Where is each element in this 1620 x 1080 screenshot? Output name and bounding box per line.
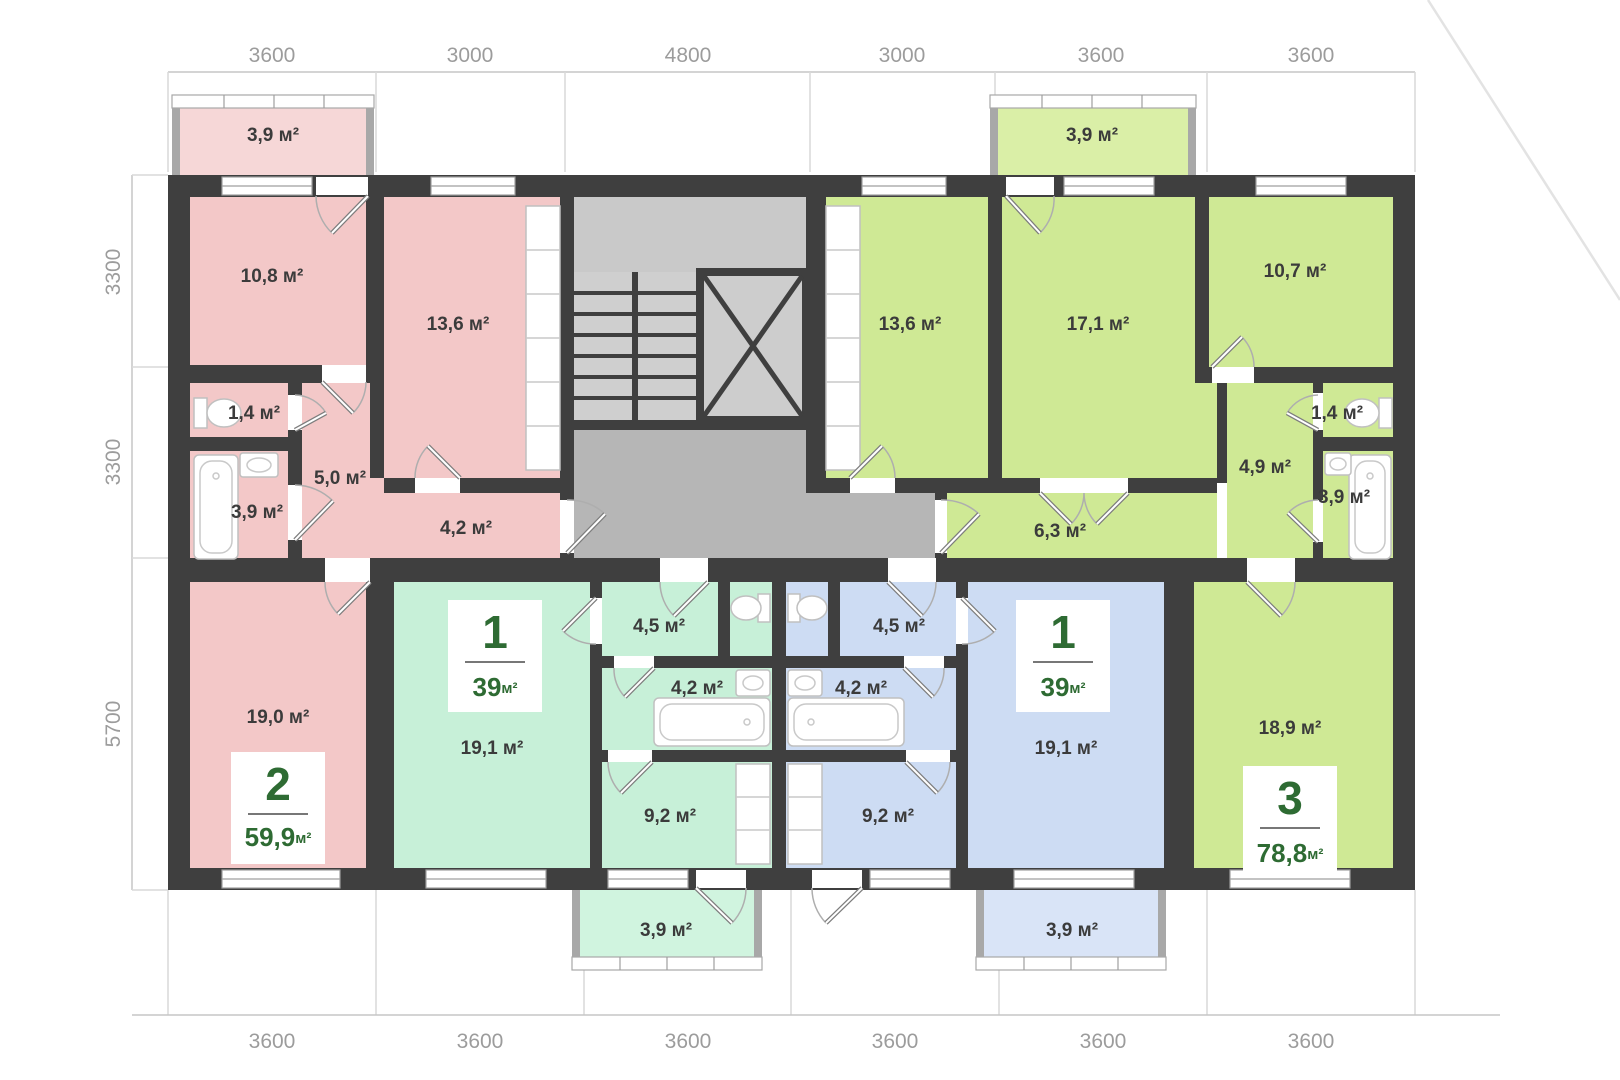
toilet-icon bbox=[731, 594, 770, 622]
room-label: 9,2 м² bbox=[644, 806, 696, 827]
sink-icon bbox=[788, 670, 822, 696]
dim-label: 3600 bbox=[249, 44, 296, 67]
room-green-17 bbox=[1002, 197, 1195, 478]
toilet-icon bbox=[788, 594, 827, 622]
room-label: 4,2 м² bbox=[440, 518, 492, 539]
room-label: 4,9 м² bbox=[1239, 457, 1291, 478]
dimension-chain-bottom: 3600 3600 3600 3600 3600 3600 bbox=[132, 890, 1500, 1053]
sink-icon bbox=[736, 670, 770, 696]
door bbox=[812, 888, 862, 923]
room-label: 3,9 м² bbox=[247, 125, 299, 146]
room-label: 3,9 м² bbox=[1066, 125, 1118, 146]
room-label: 4,5 м² bbox=[873, 616, 925, 637]
room-label: 5,0 м² bbox=[314, 468, 366, 489]
room-label: 4,2 м² bbox=[835, 678, 887, 699]
room-label: 19,0 м² bbox=[247, 707, 310, 728]
bathtub-icon bbox=[788, 698, 904, 746]
dim-label: 3300 bbox=[102, 439, 125, 486]
room-label: 18,9 м² bbox=[1259, 718, 1322, 739]
kitchen-cabinets-icon bbox=[826, 206, 860, 470]
room-label: 3,9 м² bbox=[640, 920, 692, 941]
apartment-badge-mint: 1 39м² bbox=[448, 600, 542, 712]
dim-label: 3000 bbox=[447, 44, 494, 67]
room-label: 3,9 м² bbox=[1318, 487, 1370, 508]
kitchen-cabinets-icon bbox=[788, 764, 822, 864]
room-label: 4,5 м² bbox=[633, 616, 685, 637]
room-label: 4,2 м² bbox=[671, 678, 723, 699]
dim-label: 3600 bbox=[249, 1030, 296, 1053]
sink-icon bbox=[1325, 453, 1351, 475]
badge-rooms-count: 3 bbox=[1277, 772, 1303, 824]
apartment-badge-green: 3 78,8м² bbox=[1243, 766, 1337, 878]
room-label: 3,9 м² bbox=[1046, 920, 1098, 941]
dim-label: 3600 bbox=[1288, 1030, 1335, 1053]
room-label: 19,1 м² bbox=[461, 738, 524, 759]
room-label: 10,8 м² bbox=[241, 266, 304, 287]
kitchen-cabinets-icon bbox=[736, 764, 770, 864]
site-boundary-line bbox=[1428, 0, 1620, 300]
floor-plan-page: 3600 3000 4800 3000 3600 3600 3300 3300 … bbox=[0, 0, 1620, 1080]
dim-label: 3600 bbox=[665, 1030, 712, 1053]
room-label: 13,6 м² bbox=[427, 314, 490, 335]
sink-icon bbox=[240, 453, 278, 477]
room-label: 17,1 м² bbox=[1067, 314, 1130, 335]
room-label: 9,2 м² bbox=[862, 806, 914, 827]
dim-label: 3600 bbox=[457, 1030, 504, 1053]
dim-label: 3600 bbox=[872, 1030, 919, 1053]
dim-label: 3000 bbox=[879, 44, 926, 67]
floor-plan-svg: 3600 3000 4800 3000 3600 3600 3300 3300 … bbox=[0, 0, 1620, 1080]
apartment-badge-pink: 2 59,9м² bbox=[231, 752, 325, 864]
dim-label: 3600 bbox=[1080, 1030, 1127, 1053]
room-label: 1,4 м² bbox=[1311, 403, 1363, 424]
room-label: 6,3 м² bbox=[1034, 521, 1086, 542]
badge-rooms-count: 1 bbox=[1050, 606, 1076, 658]
badge-rooms-count: 2 bbox=[265, 758, 291, 810]
dim-label: 3300 bbox=[102, 249, 125, 296]
dim-label: 3600 bbox=[1078, 44, 1125, 67]
room-label: 1,4 м² bbox=[228, 403, 280, 424]
bathtub-icon bbox=[654, 698, 770, 746]
room-label: 3,9 м² bbox=[231, 502, 283, 523]
dim-label: 3600 bbox=[1288, 44, 1335, 67]
stair-landing bbox=[574, 197, 806, 272]
room-label: 10,7 м² bbox=[1264, 261, 1327, 282]
apartment-badge-blue: 1 39м² bbox=[1016, 600, 1110, 712]
dim-label: 4800 bbox=[665, 44, 712, 67]
room-label: 13,6 м² bbox=[879, 314, 942, 335]
dim-label: 5700 bbox=[102, 701, 125, 748]
kitchen-cabinets-icon bbox=[526, 206, 560, 470]
dimension-chain-left: 3300 3300 5700 bbox=[102, 175, 168, 890]
room-label: 19,1 м² bbox=[1035, 738, 1098, 759]
badge-rooms-count: 1 bbox=[482, 606, 508, 658]
